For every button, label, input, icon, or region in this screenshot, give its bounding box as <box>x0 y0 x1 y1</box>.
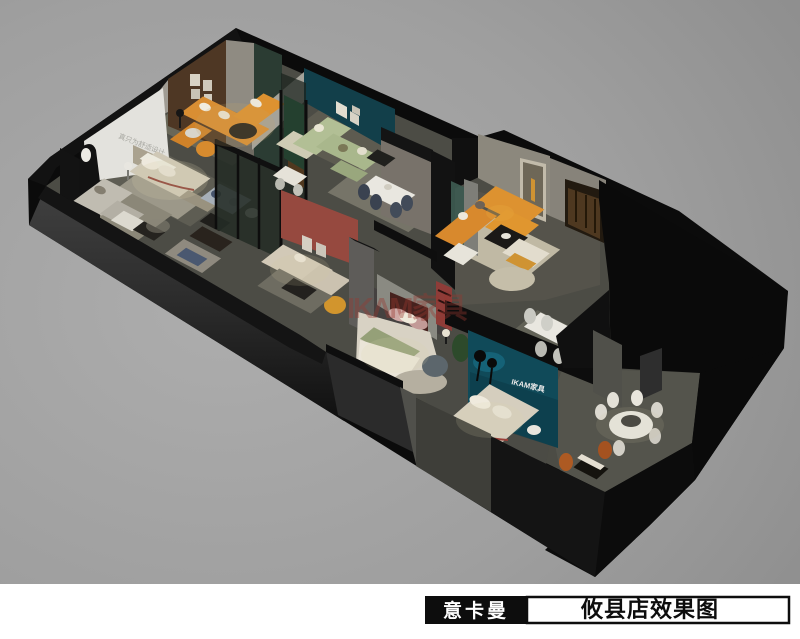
svg-text:攸县店效果图: 攸县店效果图 <box>580 597 719 622</box>
svg-text:IKΛM家具: IKΛM家具 <box>347 291 468 325</box>
svg-text:意卡曼: 意卡曼 <box>443 599 509 622</box>
